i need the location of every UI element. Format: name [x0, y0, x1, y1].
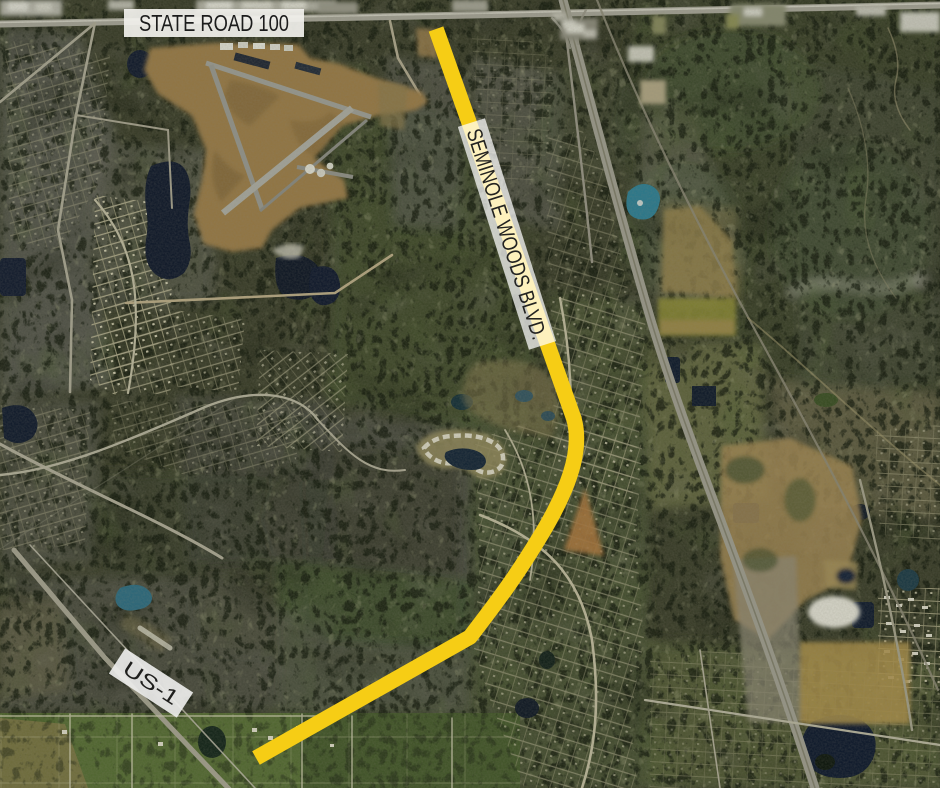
- svg-text:STATE ROAD 100: STATE ROAD 100: [139, 10, 289, 36]
